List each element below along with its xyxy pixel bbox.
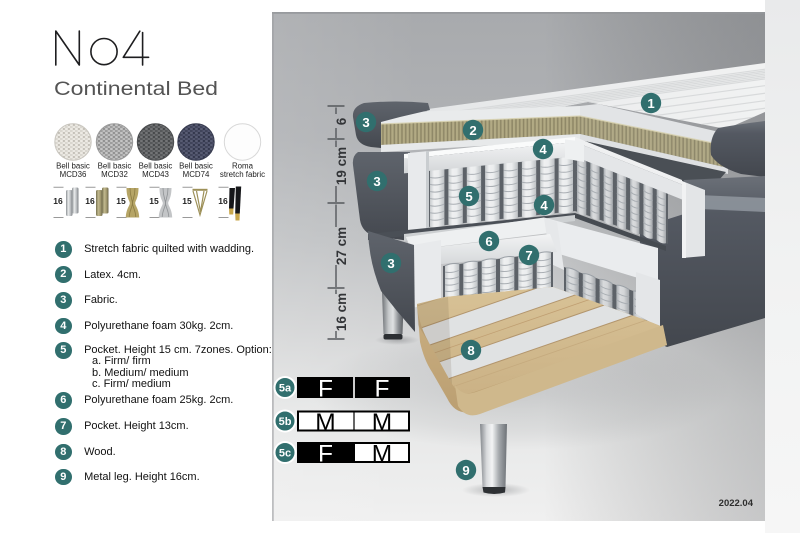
svg-text:16: 16 [85,196,95,206]
svg-text:F: F [318,440,333,467]
svg-text:5b: 5b [279,416,292,428]
svg-text:MCD74: MCD74 [183,170,210,179]
svg-text:6: 6 [334,117,349,125]
svg-text:3: 3 [387,256,394,271]
svg-text:4: 4 [539,142,547,157]
svg-text:3: 3 [362,115,369,130]
svg-text:M: M [315,409,335,436]
svg-text:16: 16 [53,196,63,206]
svg-text:F: F [318,375,333,402]
svg-text:2022.04: 2022.04 [719,498,754,509]
svg-text:3: 3 [373,174,380,189]
svg-text:M: M [372,440,392,467]
svg-text:MCD36: MCD36 [60,170,87,179]
svg-text:15: 15 [182,196,192,206]
svg-text:16 cm: 16 cm [334,293,349,331]
svg-text:5c: 5c [279,447,291,459]
svg-text:16: 16 [218,196,228,206]
svg-text:19 cm: 19 cm [334,147,349,185]
svg-text:4: 4 [540,198,548,213]
svg-text:15: 15 [116,196,126,206]
svg-text:MCD43: MCD43 [142,170,169,179]
svg-text:6: 6 [485,234,492,249]
svg-text:15: 15 [149,196,159,206]
svg-text:8: 8 [467,343,474,358]
svg-text:Continental Bed: Continental Bed [54,79,218,100]
svg-text:2: 2 [469,123,476,138]
svg-text:M: M [372,409,392,436]
svg-text:MCD32: MCD32 [101,170,128,179]
svg-text:5a: 5a [279,382,292,394]
svg-text:7: 7 [525,248,532,263]
svg-text:F: F [375,375,390,402]
svg-text:9: 9 [462,463,469,478]
svg-text:stretch fabric: stretch fabric [220,170,265,179]
svg-text:27 cm: 27 cm [334,227,349,265]
svg-text:1: 1 [647,96,654,111]
svg-text:5: 5 [465,189,472,204]
